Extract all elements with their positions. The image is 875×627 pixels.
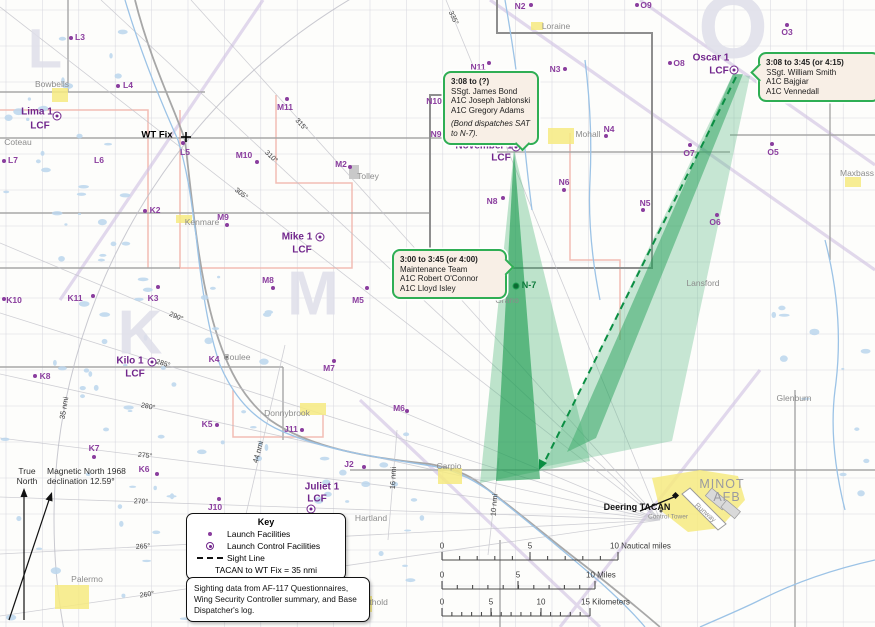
bearing-label-260: 260°: [139, 591, 154, 600]
lcf-name-oscar-1: Oscar 1: [693, 53, 730, 64]
launch-facility-dot-k7: [92, 455, 96, 459]
key-label: Sight Line: [227, 552, 265, 564]
control-tower-label: Control Tower: [648, 514, 688, 521]
lcf-name-juliet-1: Juliet 1: [305, 482, 339, 493]
scalebar-2-unit: 15 Kilometers: [581, 598, 630, 607]
launch-facility-label-l5: L5: [180, 147, 190, 157]
key-title: Key: [193, 517, 339, 527]
maintenance-callout-line-0: Maintenance Team: [400, 265, 499, 275]
launch-facility-label-l7: L7: [8, 155, 18, 165]
launch-facility-dot-o5: [770, 142, 774, 146]
launch-facility-label-n2: N2: [515, 1, 526, 11]
launch-facility-dot-l3: [69, 36, 73, 40]
oscar-callout-line-2: A1C Vennedall: [766, 87, 872, 97]
bearing-label-270: 270°: [134, 498, 149, 506]
bearing-label-275: 275°: [137, 452, 152, 461]
scalebar-0-unit: 10 Nautical miles: [610, 542, 671, 551]
town-label-coteau: Coteau: [4, 137, 31, 147]
launch-facility-label-k8: K8: [40, 371, 51, 381]
distance-label-10-nmi: 10 nmi: [489, 493, 500, 516]
launch-control-ring-icon: [193, 542, 227, 550]
oscar-callout-time: 3:08 to 3:45 (or 4:15): [766, 58, 872, 68]
launch-facility-dot-o6: [715, 213, 719, 217]
town-label-donnybrook: Donnybrook: [264, 408, 310, 418]
key-row-launch-facilities: Launch Facilities: [193, 528, 339, 540]
maintenance-callout-line-2: A1C Lloyd Isley: [400, 284, 499, 294]
lcf-name-lima-1: Lima 1: [21, 107, 53, 118]
minot-afb-label-1: MINOT: [699, 477, 744, 491]
launch-facility-label-m5: M5: [352, 295, 364, 305]
launch-facility-label-k5: K5: [202, 419, 213, 429]
november-callout-note: (Bond dispatches SAT to N-7).: [451, 119, 531, 138]
launch-facility-dot-n2: [529, 3, 533, 7]
launch-facility-label-n5: N5: [640, 198, 651, 208]
launch-facility-label-o7: O7: [683, 148, 694, 158]
launch-facility-label-n3: N3: [550, 64, 561, 74]
launch-facility-dot-n11: [487, 61, 491, 65]
launch-facility-label-k6: K6: [139, 464, 150, 474]
distance-label-16-nmi: 16 nmi: [388, 467, 398, 490]
bearing-label-290: 290°: [168, 311, 184, 323]
launch-facility-dot-m10: [255, 160, 259, 164]
launch-facility-dot-m6: [405, 409, 409, 413]
distance-label-35-nmi: 35 nmi: [58, 396, 71, 420]
town-label-glenburn: Glenburn: [777, 393, 812, 403]
scalebar-0-tick-0: 0: [440, 542, 444, 551]
map-key: Key Launch Facilities Launch Control Fac…: [186, 513, 346, 580]
launch-facility-label-l3: L3: [75, 32, 85, 42]
launch-facility-label-o6: O6: [709, 217, 720, 227]
launch-facility-dot-m5: [365, 286, 369, 290]
launch-facility-label-m9: M9: [217, 212, 229, 222]
launch-facility-label-o5: O5: [767, 147, 778, 157]
launch-facility-label-k3: K3: [148, 293, 159, 303]
november-callout: 3:08 to (?)SSgt. James BondA1C Joseph Ja…: [443, 71, 539, 145]
launch-facility-label-o8: O8: [673, 58, 684, 68]
launch-facility-label-m2: M2: [335, 159, 347, 169]
scalebar-2-tick-2: 10: [537, 598, 546, 607]
maintenance-callout-line-1: A1C Robert O'Connor: [400, 274, 499, 284]
lcf-sub-kilo-1: LCF: [125, 369, 144, 380]
launch-facility-dot-n3: [563, 67, 567, 71]
wt-fix-label: WT Fix: [141, 130, 172, 141]
launch-facility-label-j10: J10: [208, 502, 222, 512]
oscar-callout-line-1: A1C Bajgiar: [766, 77, 872, 87]
launch-facility-label-k10: K10: [6, 295, 22, 305]
n7-site-marker: [513, 283, 520, 290]
lcf-marker-mike-1: [316, 233, 325, 242]
town-label-tolley: Tolley: [357, 171, 379, 181]
town-label-palermo: Palermo: [71, 574, 103, 584]
lcf-name-mike-1: Mike 1: [282, 232, 313, 243]
key-footer: TACAN to WT Fix = 35 nmi: [193, 565, 339, 575]
n7-site-label: N-7: [522, 280, 537, 290]
bearing-label-315: 315°: [294, 117, 309, 132]
launch-facility-label-m7: M7: [323, 363, 335, 373]
town-label-maxbass: Maxbass: [840, 168, 874, 178]
minot-afb-label-2: AFB: [713, 490, 740, 504]
launch-facility-label-k4: K4: [209, 354, 220, 364]
launch-facility-dot-o3: [785, 23, 789, 27]
minot-sighting-map: LOMKBowbellsCoteauKenmareTolleyMohallLor…: [0, 0, 875, 627]
launch-facility-dot-m2: [348, 165, 352, 169]
launch-facility-dot-n5: [641, 208, 645, 212]
magnetic-north-label-2: declination 12.59°: [47, 476, 115, 486]
launch-facility-dot-k8: [33, 374, 37, 378]
launch-facility-dot-k11: [91, 294, 95, 298]
maintenance-callout-time: 3:00 to 3:45 (or 4:00): [400, 255, 499, 265]
launch-facility-dot-m9: [225, 223, 229, 227]
true-north-label-1: True: [18, 466, 35, 476]
scalebar-1-unit: 10 Miles: [586, 571, 616, 580]
launch-facility-dot-l4: [116, 84, 120, 88]
town-dot: [226, 356, 229, 359]
launch-facility-dot-m7: [332, 359, 336, 363]
launch-facility-dot-n6: [562, 188, 566, 192]
grid-letter-L: L: [28, 16, 62, 81]
oscar-callout: 3:08 to 3:45 (or 4:15)SSgt. William Smit…: [758, 52, 875, 102]
scalebar-0-tick-1: 5: [528, 542, 532, 551]
sight-line-dash-icon: [193, 557, 227, 559]
launch-facility-dot-n8: [501, 196, 505, 200]
launch-facility-label-l6: L6: [94, 155, 104, 165]
launch-facility-label-n10: N10: [426, 96, 442, 106]
deering-tacan-label: Deering TACAN: [604, 502, 671, 512]
launch-facility-dot-l7: [2, 159, 6, 163]
lcf-sub-mike-1: LCF: [292, 245, 311, 256]
launch-facility-dot-m8: [271, 286, 275, 290]
scalebar-1-tick-0: 0: [440, 571, 444, 580]
launch-facility-dot-k5: [215, 423, 219, 427]
source-note-text: Sighting data from AF-117 Questionnaires…: [194, 584, 357, 615]
launch-facility-dot-j2: [362, 465, 366, 469]
bearing-label-310: 310°: [263, 150, 278, 165]
town-label-mohall: Mohall: [575, 129, 600, 139]
launch-facility-dot-o8: [668, 61, 672, 65]
scalebar-2-tick-0: 0: [440, 598, 444, 607]
town-label-lansford: Lansford: [686, 278, 719, 288]
town-label-loraine: Loraine: [542, 21, 570, 31]
key-label: Launch Control Facilities: [227, 540, 320, 552]
key-row-launch-control: Launch Control Facilities: [193, 540, 339, 552]
launch-facility-dot-n4: [604, 134, 608, 138]
launch-facility-dot-k2: [143, 209, 147, 213]
launch-facility-dot-k6: [155, 472, 159, 476]
launch-facility-dot-m11: [285, 97, 289, 101]
grid-letter-M: M: [287, 259, 339, 330]
lcf-marker-oscar-1: [730, 66, 739, 75]
launch-facility-label-o3: O3: [781, 27, 792, 37]
distance-label-44-nmi: 44 nmi: [251, 440, 266, 464]
true-north-label-2: North: [17, 476, 38, 486]
launch-facility-label-n9: N9: [431, 129, 442, 139]
magnetic-north-label-1: Magnetic North 1968: [47, 466, 126, 476]
november-callout-line-0: SSgt. James Bond: [451, 87, 531, 97]
maintenance-callout: 3:00 to 3:45 (or 4:00)Maintenance TeamA1…: [392, 249, 507, 299]
bearing-label-305: 305°: [233, 187, 249, 201]
launch-facility-dot-o7: [688, 143, 692, 147]
scalebar-1-tick-1: 5: [516, 571, 520, 580]
launch-facility-dot-j10: [217, 497, 221, 501]
lcf-sub-oscar-1: LCF: [709, 66, 728, 77]
launch-facility-dot-l5: [181, 141, 185, 145]
launch-facility-label-o9: O9: [640, 0, 651, 10]
town-label-kenmare: Kenmare: [185, 217, 220, 227]
launch-facility-dot-icon: [193, 532, 227, 536]
town-label-carpio: Carpio: [436, 461, 461, 471]
runway-label: Runway: [693, 502, 717, 524]
bearing-label-335: 335°: [447, 10, 459, 26]
launch-facility-label-j11: J11: [284, 424, 298, 434]
launch-facility-label-n6: N6: [559, 177, 570, 187]
bearing-label-265: 265°: [136, 543, 151, 551]
scalebar-2-tick-1: 5: [489, 598, 493, 607]
launch-facility-label-m10: M10: [236, 150, 253, 160]
launch-facility-dot-k3: [156, 285, 160, 289]
lcf-sub-november-1: LCF: [491, 153, 510, 164]
launch-facility-dot-o9: [635, 3, 639, 7]
launch-facility-dot-k10: [2, 297, 6, 301]
launch-facility-label-m6: M6: [393, 403, 405, 413]
launch-facility-label-n8: N8: [487, 196, 498, 206]
launch-facility-dot-j11: [300, 428, 304, 432]
november-callout-line-1: A1C Joseph Jablonski: [451, 96, 531, 106]
launch-facility-label-m11: M11: [277, 102, 293, 112]
town-label-bowbells: Bowbells: [35, 79, 69, 89]
launch-facility-label-k11: K11: [67, 293, 82, 303]
bearing-label-280: 280°: [140, 402, 156, 412]
launch-facility-label-k2: K2: [150, 205, 161, 215]
source-note: Sighting data from AF-117 Questionnaires…: [186, 577, 370, 622]
november-callout-line-2: A1C Gregory Adams: [451, 106, 531, 116]
launch-facility-label-n4: N4: [604, 124, 615, 134]
lcf-marker-lima-1: [53, 112, 62, 121]
launch-facility-label-j2: J2: [344, 459, 353, 469]
key-label: Launch Facilities: [227, 528, 290, 540]
labels-layer: LOMKBowbellsCoteauKenmareTolleyMohallLor…: [0, 0, 875, 627]
launch-facility-label-l4: L4: [123, 80, 133, 90]
key-row-sight-line: Sight Line: [193, 552, 339, 564]
town-label-hartland: Hartland: [355, 513, 387, 523]
launch-facility-label-k7: K7: [89, 443, 100, 453]
oscar-callout-line-0: SSgt. William Smith: [766, 68, 872, 78]
lcf-sub-juliet-1: LCF: [307, 494, 326, 505]
lcf-name-kilo-1: Kilo 1: [116, 356, 143, 367]
lcf-sub-lima-1: LCF: [30, 121, 49, 132]
november-callout-time: 3:08 to (?): [451, 77, 531, 87]
launch-facility-label-m8: M8: [262, 275, 274, 285]
